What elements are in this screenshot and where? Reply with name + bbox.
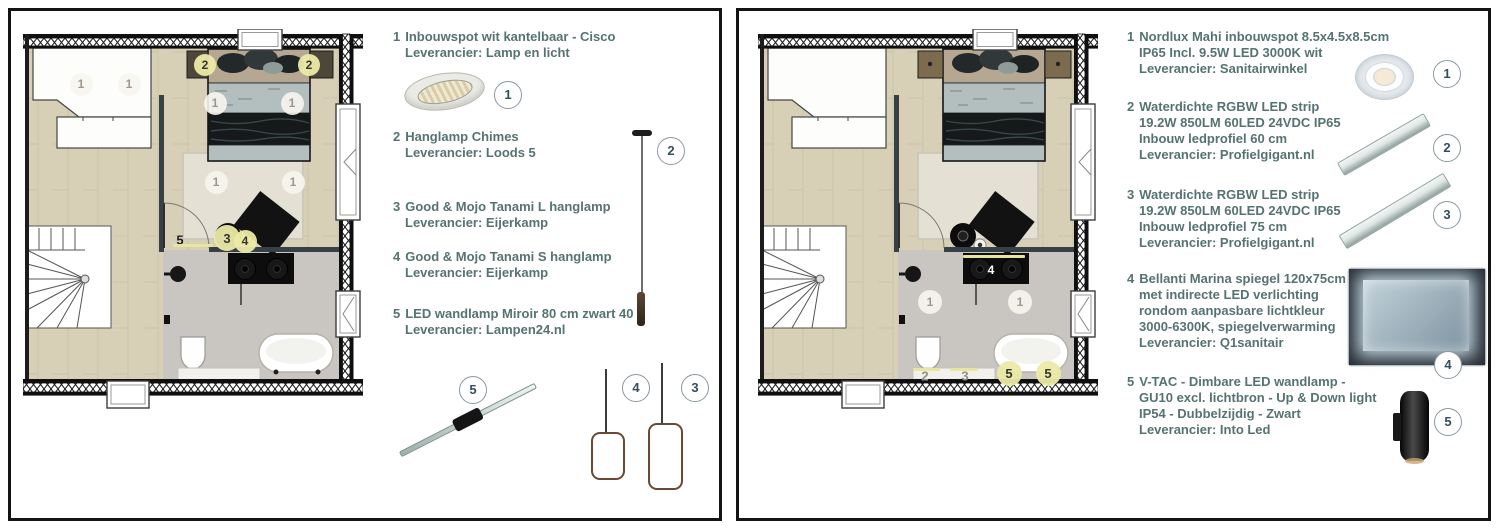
legend-item-1: 1Inbouwspot wit kantelbaar - Cisco Lever…: [393, 29, 633, 61]
legend-detail-line: IP54 - Dubbelzijdig - Zwart: [1139, 406, 1395, 422]
badge-2: 2: [1433, 134, 1461, 162]
badge-4: 4: [622, 374, 650, 402]
legend-details: Leverancier: Eijerkamp: [393, 265, 633, 281]
legend-detail-line: Leverancier: Lamp en licht: [405, 45, 633, 61]
floor-plan-bathroom: 1142355: [758, 29, 1098, 417]
legend-detail-line: GU10 excl. lichtbron - Up & Down light: [1139, 390, 1395, 406]
tanami-s-pendant-image: [591, 432, 625, 480]
legend-title: 2Hanglamp Chimes: [393, 129, 633, 145]
legend-title: 4Good & Mojo Tanami S hanglamp: [393, 249, 633, 265]
legend-detail-line: IP65 Incl. 9.5W LED 3000K wit: [1139, 45, 1395, 61]
legend-title: 1Inbouwspot wit kantelbaar - Cisco: [393, 29, 633, 45]
nordlux-spot-image: [1355, 54, 1414, 100]
plan-highlight-strip: [913, 368, 940, 371]
legend-detail-line: 19.2W 850LM 60LED 24VDC IP65: [1139, 203, 1395, 219]
plan-marker-1: 1: [1008, 290, 1032, 314]
legend-detail-line: Leverancier: Eijerkamp: [405, 215, 633, 231]
badge-3: 3: [1433, 201, 1461, 229]
legend-details: GU10 excl. lichtbron - Up & Down lightIP…: [1127, 390, 1395, 438]
pendant-cord: [641, 136, 643, 294]
badge-4: 4: [1434, 351, 1462, 379]
plan-highlight-strip: [963, 255, 1025, 258]
plan-marker-5: 5: [1036, 361, 1061, 386]
led-mirror-image: [1349, 269, 1485, 365]
legend-detail-line: Leverancier: Into Led: [1139, 422, 1395, 438]
plan-marker-4: 4: [988, 263, 995, 277]
pendant-cord: [661, 363, 663, 424]
legend-item-4: 4Good & Mojo Tanami S hanglamp Leveranci…: [393, 249, 633, 281]
legend-item-5: 5V-TAC - Dimbare LED wandlamp - GU10 exc…: [1127, 374, 1395, 438]
badge-2: 2: [657, 137, 685, 165]
plan-marker-1: 1: [118, 73, 141, 96]
plan-marker-4: 4: [234, 230, 257, 253]
legend-item-2: 2Hanglamp Chimes Leverancier: Loods 5: [393, 129, 633, 161]
legend-title: 5LED wandlamp Miroir 80 cm zwart 4000: [393, 306, 633, 322]
mirror-glass: [1363, 280, 1469, 351]
pendant-chimes-image: [637, 292, 645, 326]
led-wall-bar-image: [392, 417, 544, 423]
badge-1: 1: [1433, 60, 1461, 88]
plan-marker-1: 1: [282, 171, 305, 194]
badge-5: 5: [459, 376, 487, 404]
legend-details: Leverancier: Lamp en licht: [393, 45, 633, 61]
spot-lens: [1373, 68, 1396, 86]
badge-5: 5: [1434, 408, 1462, 436]
legend-details: Leverancier: Loods 5: [393, 145, 633, 161]
plan-marker-1: 1: [918, 290, 942, 314]
floor-plan-bedroom: 11221111345: [23, 29, 363, 417]
plan-highlight-strip: [173, 244, 213, 247]
legend-detail-line: Leverancier: Eijerkamp: [405, 265, 633, 281]
legend-details: Leverancier: Eijerkamp: [393, 215, 633, 231]
panel-bedroom-lighting-plan: 11221111345 1Inbouwspot wit kantelbaar -…: [8, 8, 722, 521]
plan-marker-1: 1: [281, 92, 304, 115]
plan-markers-left: 11221111345: [23, 29, 363, 417]
plan-marker-5: 5: [997, 361, 1022, 386]
plan-marker-2: 2: [194, 54, 216, 76]
legend-item-5: 5LED wandlamp Miroir 80 cm zwart 4000 Le…: [393, 306, 633, 338]
legend-title: 5V-TAC - Dimbare LED wandlamp -: [1127, 374, 1395, 390]
legend-detail-line: 19.2W 850LM 60LED 24VDC IP65: [1139, 115, 1395, 131]
panel-bathroom-lighting-plan: 1142355 1Nordlux Mahi inbouwspot 8.5x4.5…: [736, 8, 1491, 521]
legend-detail-line: Leverancier: Lampen24.nl: [405, 322, 633, 338]
legend-detail-line: Leverancier: Loods 5: [405, 145, 633, 161]
wall-mount: [451, 407, 484, 432]
plan-highlight-strip: [950, 368, 978, 371]
legend-title: 1Nordlux Mahi inbouwspot 8.5x4.5x8.5cm: [1127, 29, 1395, 45]
legend-item-1: 1Nordlux Mahi inbouwspot 8.5x4.5x8.5cm I…: [1127, 29, 1395, 77]
spot-reflector: [415, 75, 474, 108]
plan-marker-1: 1: [204, 92, 227, 115]
badge-1: 1: [494, 81, 522, 109]
legend-title: 2Waterdichte RGBW LED strip: [1127, 99, 1395, 115]
wall-mount: [1393, 413, 1401, 441]
legend-item-3: 3Good & Mojo Tanami L hanglamp Leveranci…: [393, 199, 633, 231]
updown-wall-lamp-image: [1400, 391, 1429, 461]
lighting-plan-sheet: { "colors": { "legend_text": "#577272", …: [0, 0, 1500, 530]
legend-title: 3Good & Mojo Tanami L hanglamp: [393, 199, 633, 215]
plan-marker-2: 2: [298, 54, 320, 76]
legend-detail-line: Inbouw ledprofiel 60 cm: [1139, 131, 1395, 147]
legend-title: 3Waterdichte RGBW LED strip: [1127, 187, 1395, 203]
legend-details: Leverancier: Lampen24.nl: [393, 322, 633, 338]
pendant-cord: [605, 369, 607, 433]
plan-marker-1: 1: [205, 171, 228, 194]
recessed-spot-image: [402, 68, 487, 116]
down-light-glow: [1405, 458, 1424, 464]
plan-marker-1: 1: [70, 73, 93, 96]
badge-3: 3: [681, 374, 709, 402]
tanami-l-pendant-image: [648, 423, 683, 490]
plan-markers-right: 1142355: [758, 29, 1098, 417]
